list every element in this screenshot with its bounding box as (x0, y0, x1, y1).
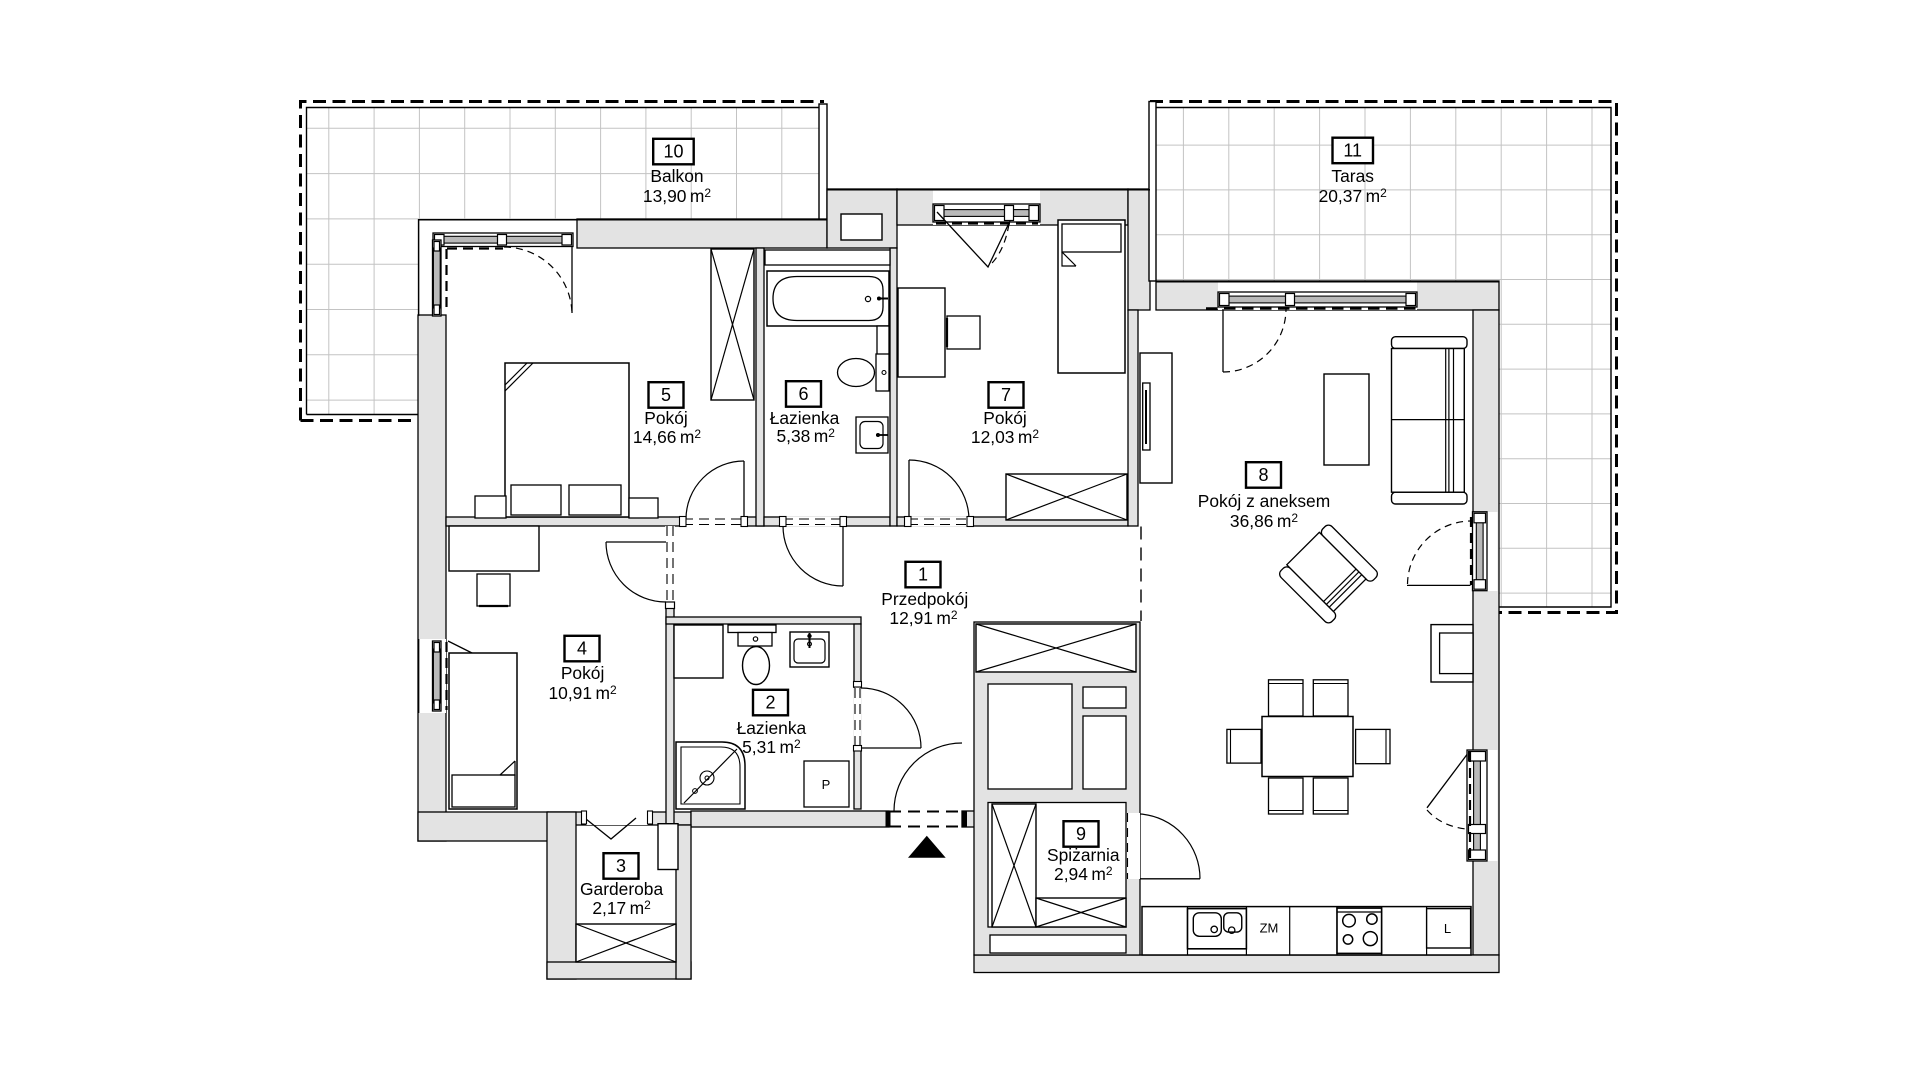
svg-text:12,91 m2: 12,91 m2 (889, 608, 958, 628)
svg-text:14,66 m2: 14,66 m2 (633, 427, 702, 447)
svg-text:9: 9 (1076, 824, 1086, 844)
svg-text:2: 2 (765, 693, 775, 713)
svg-text:8: 8 (1258, 465, 1268, 485)
svg-text:13,90 m2: 13,90 m2 (643, 186, 712, 206)
svg-text:2,94 m2: 2,94 m2 (1054, 864, 1113, 884)
svg-text:5,31 m2: 5,31 m2 (742, 737, 801, 757)
svg-text:Przedpokój: Przedpokój (881, 589, 968, 609)
svg-text:Taras: Taras (1331, 166, 1374, 186)
svg-text:2,17 m2: 2,17 m2 (592, 898, 651, 918)
svg-text:6: 6 (798, 384, 808, 404)
svg-text:10,91 m2: 10,91 m2 (549, 683, 618, 703)
svg-text:L: L (1444, 921, 1451, 936)
svg-text:5: 5 (661, 385, 671, 405)
svg-text:P: P (822, 777, 831, 792)
svg-text:1: 1 (918, 565, 928, 585)
svg-text:11: 11 (1343, 140, 1362, 160)
svg-text:Łazienka: Łazienka (737, 718, 807, 738)
svg-text:Pokój z aneksem: Pokój z aneksem (1198, 491, 1330, 511)
svg-text:Garderoba: Garderoba (580, 879, 663, 899)
svg-text:Pokój: Pokój (561, 663, 605, 683)
svg-text:20,37 m2: 20,37 m2 (1319, 186, 1388, 206)
svg-text:10: 10 (663, 142, 683, 162)
svg-text:36,86 m2: 36,86 m2 (1230, 511, 1299, 531)
svg-text:Spiżarnia: Spiżarnia (1047, 845, 1120, 865)
svg-text:3: 3 (616, 856, 626, 876)
svg-text:Pokój: Pokój (644, 408, 688, 428)
svg-text:Pokój: Pokój (983, 408, 1027, 428)
svg-text:5,38 m2: 5,38 m2 (776, 426, 835, 446)
svg-text:7: 7 (1001, 385, 1011, 405)
svg-text:Łazienka: Łazienka (770, 408, 840, 428)
svg-text:4: 4 (577, 639, 587, 659)
svg-text:ZM: ZM (1260, 921, 1279, 936)
svg-text:12,03 m2: 12,03 m2 (971, 427, 1040, 447)
svg-text:Balkon: Balkon (650, 166, 703, 186)
